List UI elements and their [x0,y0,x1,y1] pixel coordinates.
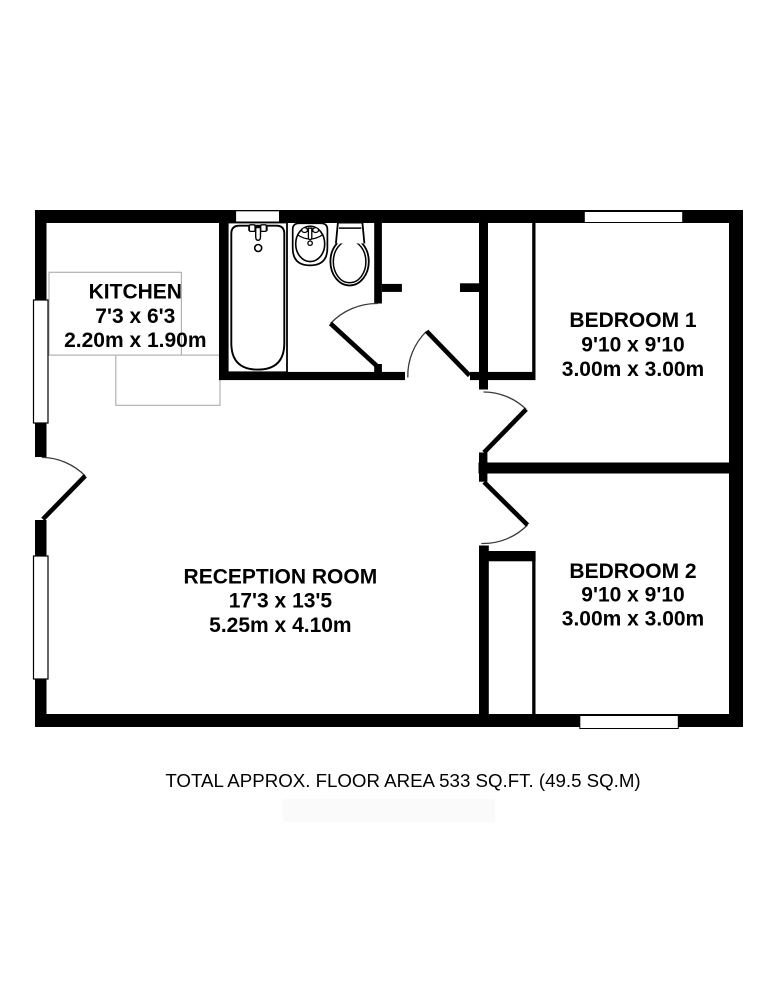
svg-text:7'3 x 6'3: 7'3 x 6'3 [95,305,175,328]
svg-text:3.00m x 3.00m: 3.00m x 3.00m [562,358,704,381]
svg-text:BEDROOM 2: BEDROOM 2 [569,560,696,583]
svg-text:RECEPTION ROOM: RECEPTION ROOM [184,565,378,588]
svg-text:2.20m x 1.90m: 2.20m x 1.90m [64,329,206,352]
svg-text:TOTAL APPROX. FLOOR AREA 533 S: TOTAL APPROX. FLOOR AREA 533 SQ.FT. (49.… [165,770,640,791]
svg-text:5.25m x 4.10m: 5.25m x 4.10m [209,614,351,637]
svg-text:9'10 x 9'10: 9'10 x 9'10 [581,334,684,357]
svg-text:KITCHEN: KITCHEN [89,281,182,304]
svg-text:17'3 x 13'5: 17'3 x 13'5 [229,590,333,613]
svg-text:BEDROOM 1: BEDROOM 1 [569,309,697,332]
svg-text:9'10 x 9'10: 9'10 x 9'10 [581,584,684,607]
svg-text:3.00m x 3.00m: 3.00m x 3.00m [562,608,704,631]
